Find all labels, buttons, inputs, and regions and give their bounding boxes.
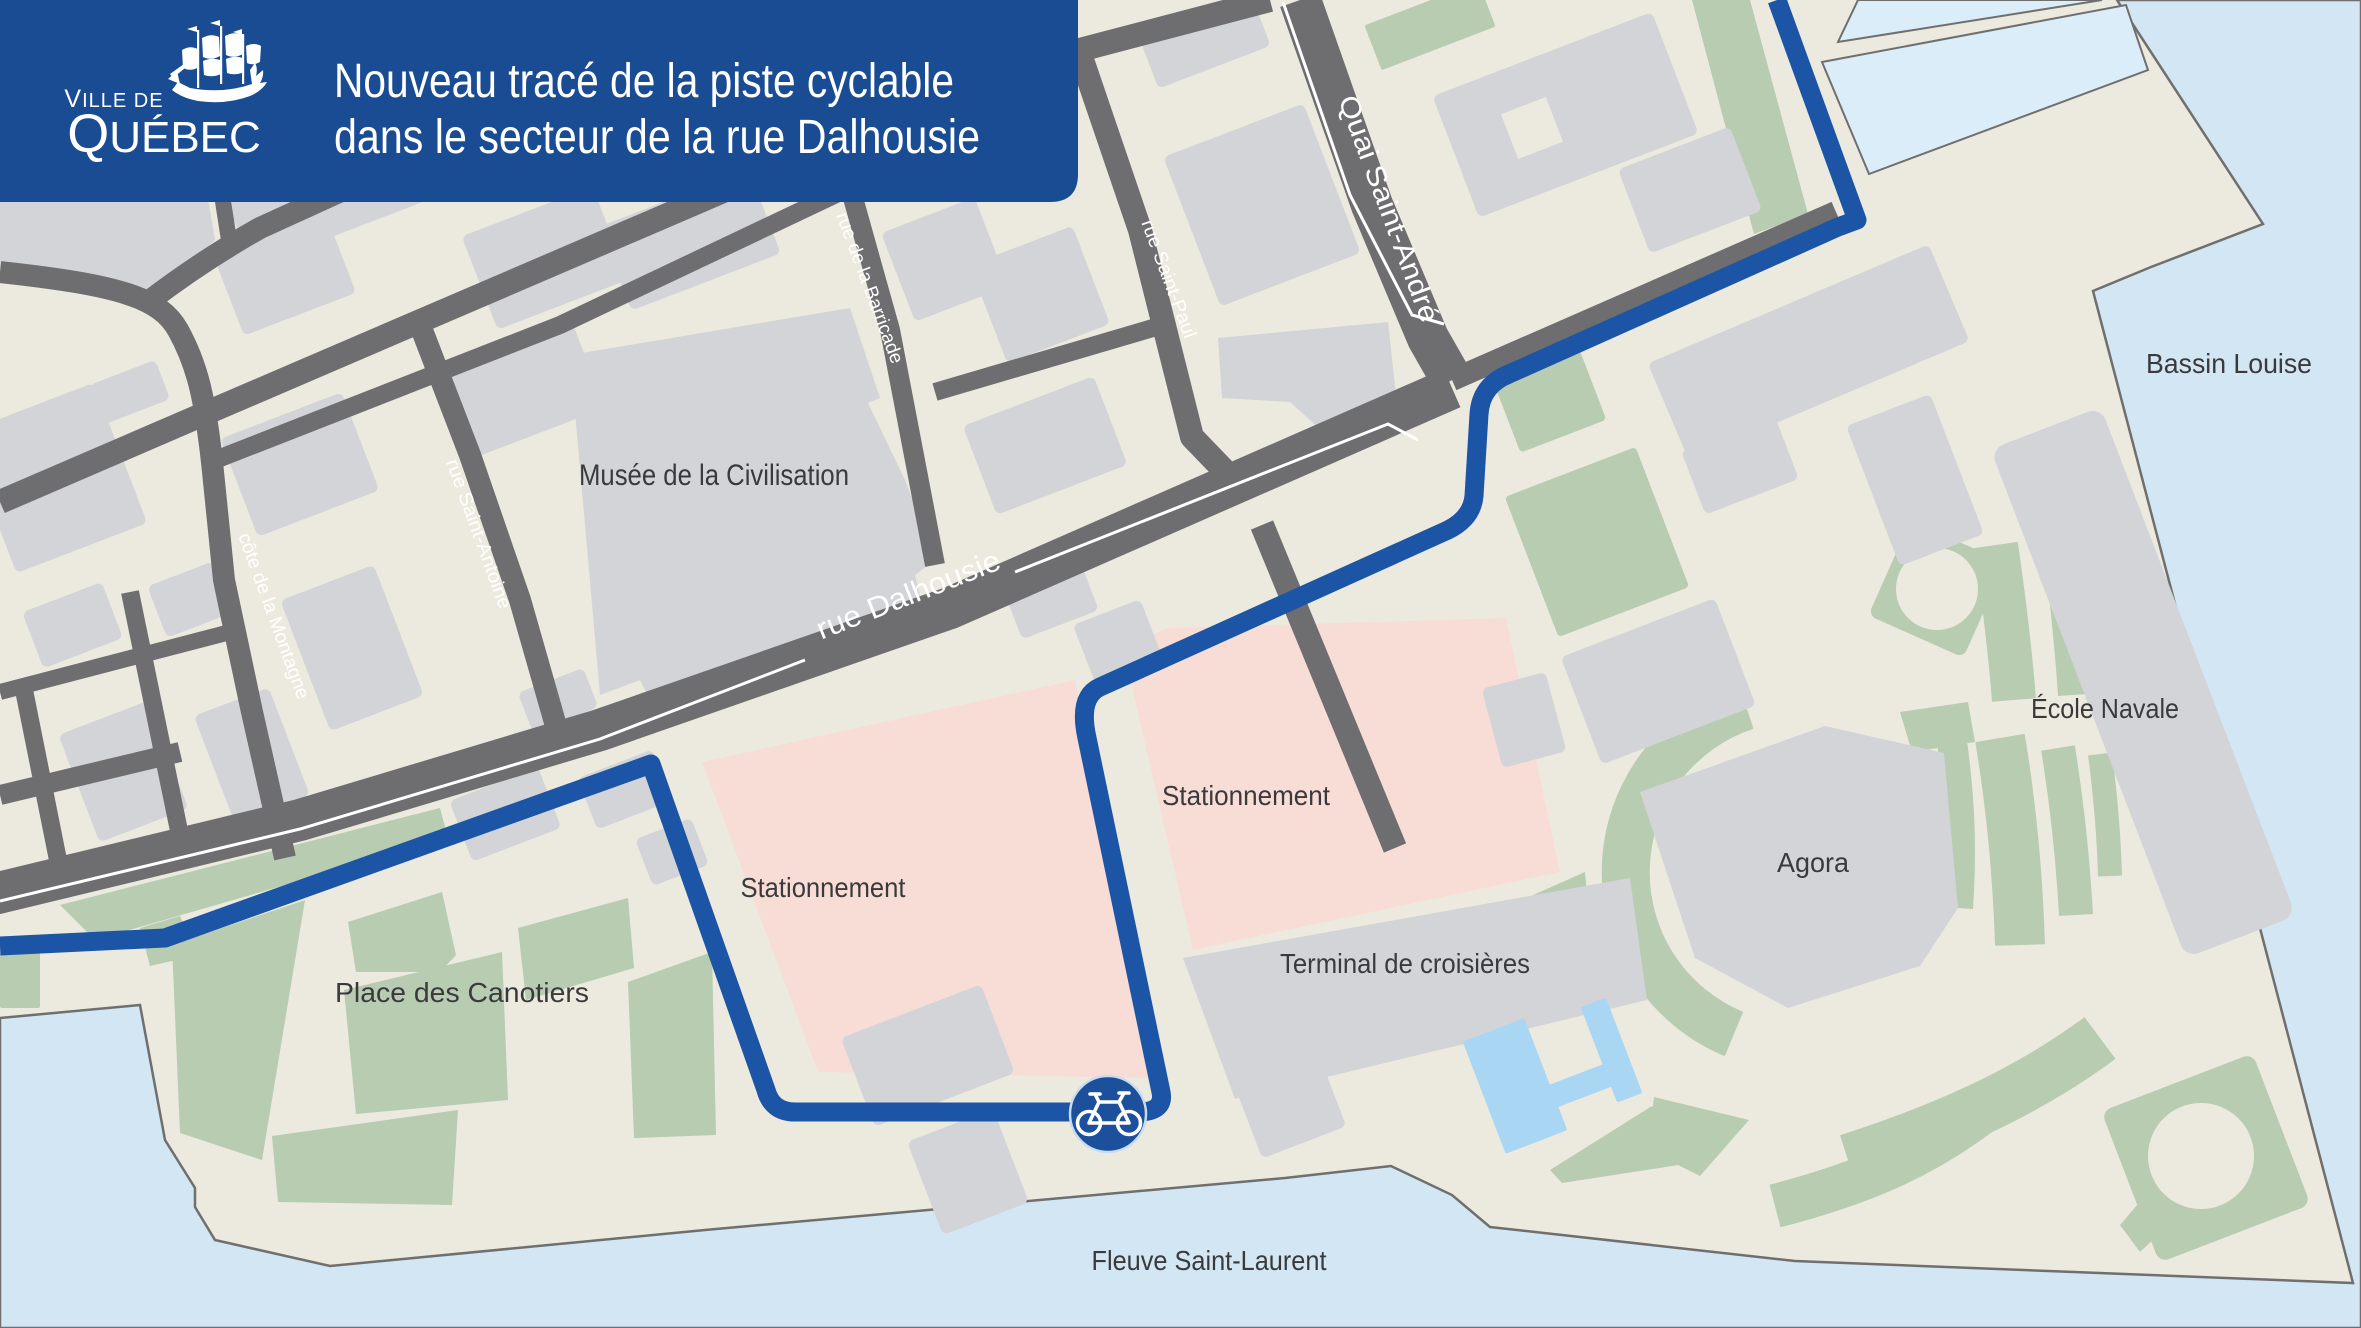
svg-text:École Navale: École Navale [2031,693,2179,724]
svg-text:Stationnement: Stationnement [741,872,906,903]
svg-text:Stationnement: Stationnement [1162,780,1330,811]
svg-text:Fleuve Saint-Laurent: Fleuve Saint-Laurent [1092,1245,1327,1276]
svg-text:dans le secteur de la rue Dalh: dans le secteur de la rue Dalhousie [334,111,980,164]
svg-text:Terminal de croisières: Terminal de croisières [1280,948,1530,979]
svg-text:Place des Canotiers: Place des Canotiers [335,977,589,1008]
svg-text:Musée de la Civilisation: Musée de la Civilisation [579,459,849,492]
svg-text:Agora: Agora [1777,847,1849,878]
svg-text:Bassin Louise: Bassin Louise [2146,348,2312,379]
svg-text:QUÉBEC: QUÉBEC [67,104,261,164]
svg-text:Nouveau tracé de la piste cycl: Nouveau tracé de la piste cyclable [334,55,954,108]
